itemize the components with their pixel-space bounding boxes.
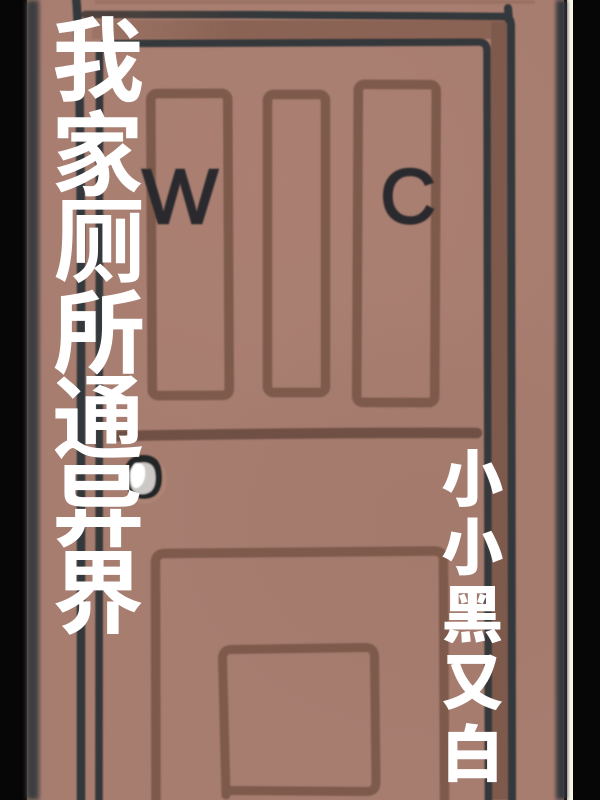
svg-text:W: W xyxy=(142,153,218,239)
svg-text:C: C xyxy=(380,154,436,240)
